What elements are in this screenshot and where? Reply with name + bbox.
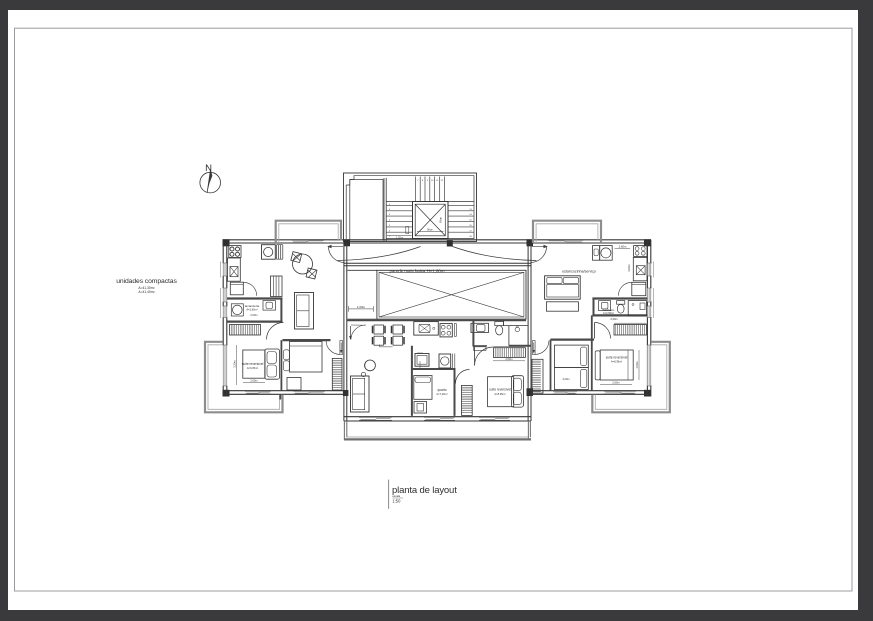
svg-text:1,20m: 1,20m <box>396 236 403 240</box>
svg-text:suíte reversível: suíte reversível <box>606 355 628 359</box>
svg-text:90cm: 90cm <box>440 217 443 223</box>
svg-text:3,20m: 3,20m <box>233 360 237 367</box>
svg-text:2,60m: 2,60m <box>250 313 257 317</box>
svg-text:2,60m: 2,60m <box>611 318 618 321</box>
svg-text:▲: ▲ <box>389 202 391 205</box>
svg-text:quarto: quarto <box>437 388 446 392</box>
svg-text:1:50: 1:50 <box>392 499 401 504</box>
svg-text:suíte reversível: suíte reversível <box>489 388 511 392</box>
svg-text:A=41,40m²: A=41,40m² <box>138 290 155 294</box>
svg-text:N: N <box>205 163 212 174</box>
svg-text:1,50m: 1,50m <box>635 361 639 368</box>
svg-text:planta de layout: planta de layout <box>392 485 457 496</box>
svg-text:A=2,96m²: A=2,96m² <box>603 312 614 315</box>
svg-text:90cm: 90cm <box>427 228 433 231</box>
svg-text:parede mais baixa H=1,60m: parede mais baixa H=1,60m <box>389 269 444 274</box>
svg-text:estar/cozinha/serviço: estar/cozinha/serviço <box>562 270 596 274</box>
svg-text:3,20m: 3,20m <box>562 377 569 381</box>
svg-text:2,60m: 2,60m <box>505 357 512 361</box>
svg-text:1,00m: 1,00m <box>357 305 366 309</box>
svg-text:banheiro: banheiro <box>603 308 615 312</box>
svg-text:escala: escala <box>392 494 400 498</box>
svg-text:2,60m: 2,60m <box>619 245 627 249</box>
svg-text:A=8,35m²: A=8,35m² <box>494 392 505 396</box>
svg-text:suíte reversível: suíte reversível <box>242 362 264 366</box>
svg-text:A=9,35m²: A=9,35m² <box>247 366 258 370</box>
svg-text:A=8,38m²: A=8,38m² <box>611 359 622 363</box>
svg-text:2,60m: 2,60m <box>250 379 257 383</box>
svg-text:unidades compactas: unidades compactas <box>116 278 177 285</box>
svg-text:A=7,20m²: A=7,20m² <box>436 392 447 396</box>
svg-text:lavanderia: lavanderia <box>245 304 260 308</box>
svg-text:3,60m: 3,60m <box>627 264 631 271</box>
svg-text:A=2,60m²: A=2,60m² <box>246 308 257 312</box>
svg-text:2,60m: 2,60m <box>612 381 619 385</box>
